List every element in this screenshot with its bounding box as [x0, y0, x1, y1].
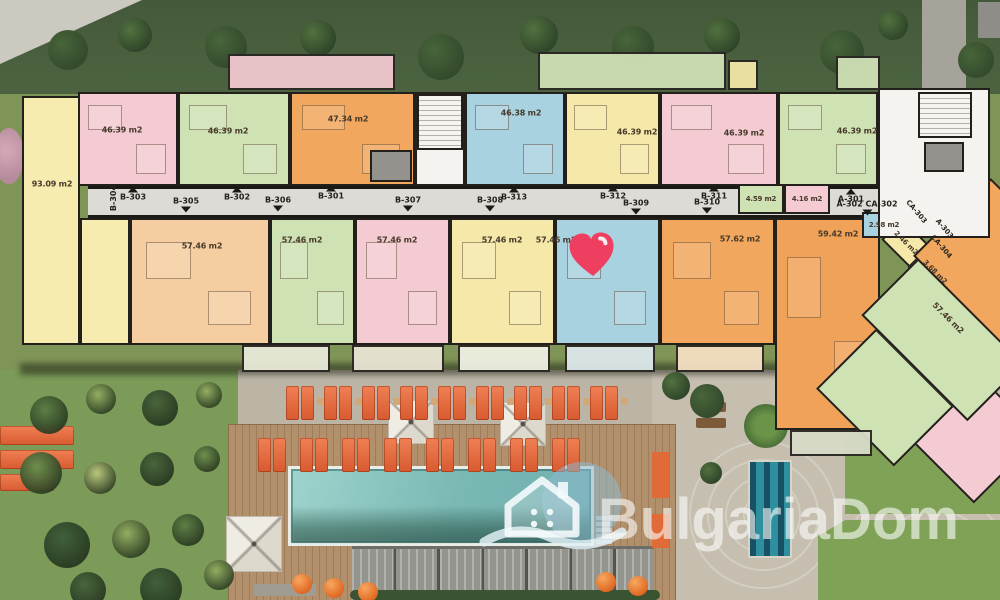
- sun-lounger: [552, 386, 565, 420]
- door-label: B-303: [120, 187, 146, 202]
- sun-lounger: [415, 386, 428, 420]
- bench: [696, 418, 726, 428]
- sun-lounger: [362, 386, 375, 420]
- area-label: 59.42 m2: [818, 230, 858, 239]
- door-label-text: B-306: [265, 197, 291, 205]
- furniture: [462, 242, 496, 278]
- tree: [878, 10, 908, 40]
- door-label-text: B-313: [501, 194, 527, 202]
- door-arrow-icon: [273, 206, 283, 212]
- balcony: [676, 345, 764, 372]
- sun-lounger: [384, 438, 397, 472]
- door-label-text: B-308: [477, 197, 503, 205]
- tree: [690, 384, 724, 418]
- furniture: [280, 242, 308, 278]
- door-arrow-icon: [702, 208, 712, 214]
- furniture: [317, 291, 343, 325]
- sun-lounger: [258, 438, 271, 472]
- area-label: 57.46 m2: [482, 236, 522, 245]
- pouf: [358, 582, 378, 600]
- balcony: [836, 56, 880, 90]
- sun-lounger: [286, 386, 299, 420]
- unit-top-row: [565, 92, 660, 186]
- unit-top-row: [178, 92, 290, 186]
- garden-bush: [20, 452, 62, 494]
- brand-watermark-text: BulgariaDom: [598, 486, 959, 553]
- sun-lounger: [301, 386, 314, 420]
- door-label-text: B-309: [623, 200, 649, 208]
- sun-lounger: [342, 438, 355, 472]
- pouf: [292, 574, 312, 594]
- furniture: [620, 144, 649, 175]
- door-label-text: B-307: [395, 197, 421, 205]
- area-label: 57.46 m2: [182, 242, 222, 251]
- hedge: [350, 590, 660, 600]
- furniture: [243, 144, 277, 175]
- sun-lounger: [529, 386, 542, 420]
- pouf: [324, 578, 344, 598]
- furniture: [787, 257, 821, 317]
- door-label: A-302 CA-302: [836, 201, 897, 216]
- sun-lounger: [514, 386, 527, 420]
- area-label: 46.39 m2: [837, 127, 877, 136]
- door-arrow-icon: [181, 207, 191, 213]
- tree: [300, 20, 336, 56]
- tree: [958, 42, 994, 78]
- door-label-text: A-302 CA-302: [836, 201, 897, 209]
- flowering-shrub: [0, 128, 24, 184]
- area-label: 2.98 m2: [869, 221, 899, 229]
- balcony: [352, 345, 444, 372]
- unit-corner: [80, 218, 130, 345]
- pouf: [628, 576, 648, 596]
- garden-bush: [44, 522, 90, 568]
- balcony: [242, 345, 330, 372]
- garden-bush: [30, 396, 68, 434]
- pouf: [596, 572, 616, 592]
- furniture: [836, 144, 867, 175]
- parasol: [226, 516, 282, 572]
- balcony: [790, 430, 872, 456]
- sun-lounger: [315, 438, 328, 472]
- door-label: B-313: [501, 187, 527, 202]
- path-top-right: [922, 0, 966, 88]
- door-label: B-302: [224, 187, 250, 202]
- door-label: B-301: [318, 186, 344, 201]
- door-label-text: B-310: [694, 199, 720, 207]
- unit-bottom-row: [130, 218, 270, 345]
- garden-bush: [112, 520, 150, 558]
- stairs: [417, 94, 463, 150]
- furniture: [614, 291, 646, 325]
- tree: [418, 34, 464, 80]
- door-label: B-309: [623, 200, 649, 215]
- balcony: [565, 345, 655, 372]
- furniture: [523, 144, 554, 175]
- side-table: [317, 398, 324, 405]
- sun-lounger: [590, 386, 603, 420]
- stairs: [918, 92, 972, 138]
- garden-bush: [70, 572, 106, 600]
- area-label: 4.59 m2: [746, 195, 776, 203]
- door-label-vertical: B-304: [110, 185, 118, 211]
- balcony: [458, 345, 550, 372]
- sun-lounger: [400, 386, 413, 420]
- door-label: B-305: [173, 198, 199, 213]
- sun-lounger: [441, 438, 454, 472]
- unit-corner: [22, 96, 80, 345]
- unit-top-row: [778, 92, 878, 186]
- side-table: [507, 398, 514, 405]
- tree: [118, 18, 152, 52]
- sun-lounger: [399, 438, 412, 472]
- elevator: [924, 142, 964, 172]
- sun-lounger: [491, 386, 504, 420]
- side-table: [431, 398, 438, 405]
- sun-lounger: [438, 386, 451, 420]
- garden-bush: [142, 390, 178, 426]
- area-label: 4.16 m2: [792, 195, 822, 203]
- sun-lounger: [605, 386, 618, 420]
- sun-lounger: [300, 438, 313, 472]
- garden-bush: [172, 514, 204, 546]
- area-label: 57.62 m2: [720, 235, 760, 244]
- heart-icon: [567, 231, 617, 279]
- area-label: 93.09 m2: [32, 180, 72, 189]
- elevator: [370, 150, 412, 182]
- sun-lounger: [426, 438, 439, 472]
- door-arrow-icon: [862, 210, 872, 216]
- resort-siteplan: 93.09 m246.39 m246.39 m247.34 m246.38 m2…: [0, 0, 1000, 600]
- sun-lounger: [273, 438, 286, 472]
- side-table: [621, 398, 628, 405]
- balcony: [228, 54, 395, 90]
- door-label: B-307: [395, 197, 421, 212]
- sun-lounger: [339, 386, 352, 420]
- area-label: 46.39 m2: [617, 128, 657, 137]
- door-label-text: B-305: [173, 198, 199, 206]
- side-table: [393, 398, 400, 405]
- sun-lounger: [567, 386, 580, 420]
- side-table: [469, 398, 476, 405]
- unit-top-row: [78, 92, 178, 186]
- balcony: [728, 60, 758, 90]
- tree: [520, 16, 558, 54]
- area-label: 46.39 m2: [208, 127, 248, 136]
- door-arrow-icon: [631, 209, 641, 215]
- area-label: 57.46 m2: [377, 236, 417, 245]
- garden-bush: [196, 382, 222, 408]
- door-label: B-306: [265, 197, 291, 212]
- sun-lounger: [453, 386, 466, 420]
- area-label: 57.46 m2: [282, 236, 322, 245]
- furniture: [366, 242, 397, 278]
- area-label: 47.34 m2: [328, 115, 368, 124]
- unit-top-row: [660, 92, 778, 186]
- area-label: 46.38 m2: [501, 109, 541, 118]
- brand-watermark: BulgariaDom: [470, 460, 1000, 570]
- sun-lounger: [357, 438, 370, 472]
- furniture: [408, 291, 437, 325]
- door-label: B-310: [694, 199, 720, 214]
- sun-lounger: [377, 386, 390, 420]
- door-label-text: B-301: [318, 193, 344, 201]
- door-label-text: B-302: [224, 194, 250, 202]
- furniture: [788, 105, 823, 130]
- furniture: [509, 291, 541, 325]
- sun-lounger: [476, 386, 489, 420]
- roof-top-right: [978, 2, 1000, 38]
- furniture: [671, 105, 712, 130]
- furniture: [136, 144, 167, 175]
- door-arrow-icon: [403, 206, 413, 212]
- area-label: 46.39 m2: [102, 126, 142, 135]
- tree: [662, 372, 690, 400]
- furniture: [574, 105, 607, 130]
- unit-top-row: [465, 92, 565, 186]
- garden-bush: [86, 384, 116, 414]
- side-table: [545, 398, 552, 405]
- sun-lounger: [324, 386, 337, 420]
- furniture: [208, 291, 251, 325]
- area-label: 46.39 m2: [724, 129, 764, 138]
- garden-bush: [84, 462, 116, 494]
- side-table: [583, 398, 590, 405]
- door-label: B-308: [477, 197, 503, 212]
- furniture: [724, 291, 759, 325]
- garden-bush: [140, 452, 174, 486]
- garden-bush: [194, 446, 220, 472]
- balcony: [538, 52, 726, 90]
- garden-bush: [204, 560, 234, 590]
- furniture: [673, 242, 711, 278]
- tree: [48, 30, 88, 70]
- furniture: [728, 144, 764, 175]
- door-arrow-icon: [485, 206, 495, 212]
- tree: [704, 18, 740, 54]
- door-label-text: B-303: [120, 194, 146, 202]
- side-table: [355, 398, 362, 405]
